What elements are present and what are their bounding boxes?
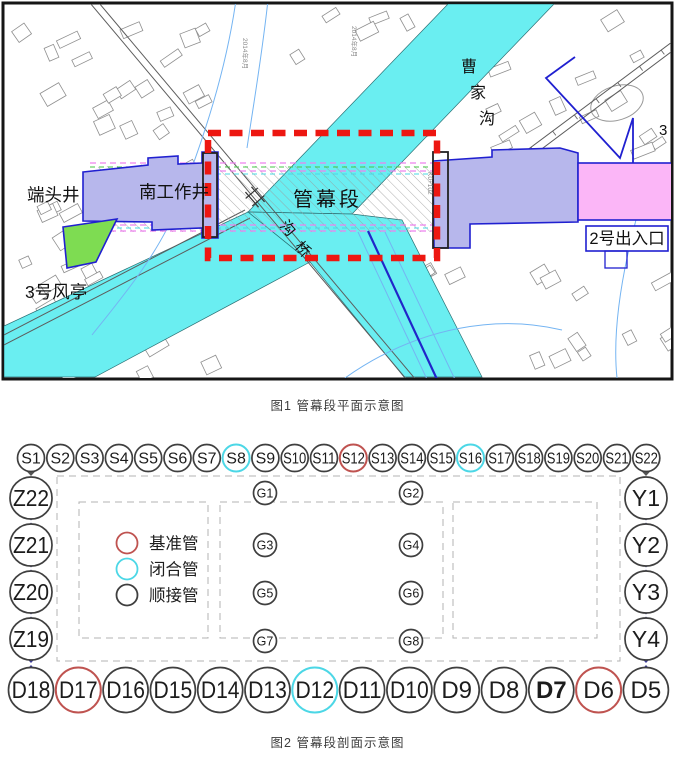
pipe-circle-S3: S3 — [76, 445, 103, 472]
svg-text:D8: D8 — [489, 677, 520, 704]
svg-text:S10: S10 — [283, 450, 306, 467]
pipe-circle-D12: D12 — [292, 668, 337, 713]
svg-text:S17: S17 — [488, 450, 511, 467]
pipe-circle-Y4: Y4 — [625, 618, 667, 660]
label-end-shaft: 端头井 — [27, 185, 80, 205]
pipe-circle-S14: S14 — [398, 445, 425, 472]
svg-text:家: 家 — [470, 84, 486, 102]
svg-text:S11: S11 — [312, 450, 335, 467]
svg-text:Y4: Y4 — [632, 626, 660, 652]
pipe-circle-S17: S17 — [486, 445, 513, 472]
svg-text:S1: S1 — [21, 450, 41, 467]
svg-text:S21: S21 — [605, 450, 628, 467]
pipe-circle-Z20: Z20 — [10, 571, 52, 613]
pipe-circle-D13: D13 — [245, 668, 290, 713]
svg-text:G3: G3 — [257, 538, 274, 552]
svg-text:G7: G7 — [257, 634, 274, 648]
svg-text:S22: S22 — [635, 450, 658, 467]
pipe-circle-S22: S22 — [633, 445, 660, 472]
svg-text:Z21: Z21 — [13, 532, 49, 558]
figure1-plan-map: 2014年8月 2014年8月 K0+102 端头井 南工作井 管幕段 3号风亭… — [0, 0, 675, 392]
pipe-circle-S11: S11 — [311, 445, 338, 472]
svg-text:S9: S9 — [256, 450, 276, 467]
middle-dashed-box — [220, 502, 443, 638]
svg-text:G1: G1 — [257, 486, 274, 500]
pipe-circle-D11: D11 — [340, 668, 385, 713]
svg-text:S16: S16 — [459, 450, 482, 467]
figure1-caption: 图1 管幕段平面示意图 — [0, 395, 675, 414]
label-pipe-curtain: 管幕段 — [293, 188, 362, 211]
svg-text:D6: D6 — [583, 677, 614, 704]
pipe-circle-G6: G6 — [400, 582, 423, 605]
svg-text:G6: G6 — [403, 586, 420, 600]
svg-text:D14: D14 — [201, 677, 240, 704]
pipe-circle-Y1: Y1 — [625, 477, 667, 519]
svg-text:S5: S5 — [138, 450, 158, 467]
pipe-circle-Y2: Y2 — [625, 524, 667, 566]
figure2-cross-section: S1S2S3S4S5S6S7S8S9S10S11S12S13S14S15S16S… — [0, 420, 675, 728]
pipe-circle-S10: S10 — [281, 445, 308, 472]
outer-dashed-box — [57, 476, 620, 661]
svg-text:Z22: Z22 — [13, 485, 49, 511]
legend-normal-label: 顺接管 — [149, 586, 199, 605]
pipe-circle-S2: S2 — [47, 445, 74, 472]
svg-text:S2: S2 — [51, 450, 71, 467]
svg-text:G4: G4 — [403, 538, 420, 552]
svg-text:S15: S15 — [430, 450, 453, 467]
pipe-circle-D18: D18 — [9, 668, 54, 713]
svg-text:沟: 沟 — [479, 110, 495, 128]
svg-text:2014年8月: 2014年8月 — [350, 26, 359, 57]
pipe-circle-S9: S9 — [252, 445, 279, 472]
pipe-circle-D9: D9 — [434, 668, 479, 713]
svg-text:G5: G5 — [257, 586, 274, 600]
pipe-circle-S5: S5 — [135, 445, 162, 472]
pipe-circle-S18: S18 — [516, 445, 543, 472]
svg-text:S8: S8 — [226, 450, 246, 467]
legend-normal-circle — [117, 585, 138, 606]
svg-text:S12: S12 — [342, 450, 365, 467]
svg-text:G8: G8 — [403, 634, 420, 648]
svg-text:曹: 曹 — [461, 58, 477, 76]
svg-text:D5: D5 — [631, 677, 662, 704]
svg-text:Y3: Y3 — [632, 579, 660, 605]
svg-text:Z20: Z20 — [13, 579, 49, 605]
svg-text:S7: S7 — [197, 450, 217, 467]
pipe-circle-S4: S4 — [105, 445, 132, 472]
svg-text:S4: S4 — [109, 450, 129, 467]
svg-text:2014年8月: 2014年8月 — [241, 38, 250, 69]
page: 2014年8月 2014年8月 K0+102 端头井 南工作井 管幕段 3号风亭… — [0, 0, 675, 761]
pipe-circle-S1: S1 — [18, 445, 45, 472]
pipe-circle-G8: G8 — [400, 630, 423, 653]
legend: 基准管闭合管顺接管 — [117, 533, 199, 606]
pipe-circle-D17: D17 — [56, 668, 101, 713]
pipe-circle-G5: G5 — [254, 582, 277, 605]
svg-text:D9: D9 — [441, 677, 472, 704]
right-dashed-box — [453, 502, 597, 638]
pipe-circle-S12: S12 — [340, 445, 367, 472]
svg-text:D16: D16 — [106, 677, 145, 704]
label-exit2: 2号出入口 — [589, 229, 664, 248]
pipe-circle-S21: S21 — [604, 445, 631, 472]
label-vent3: 3号风亭 — [25, 282, 87, 302]
svg-text:D12: D12 — [295, 677, 334, 704]
pipe-circle-D14: D14 — [198, 668, 243, 713]
svg-text:K0+102: K0+102 — [426, 172, 433, 195]
pipe-circle-S13: S13 — [369, 445, 396, 472]
pipe-circle-G1: G1 — [254, 482, 277, 505]
svg-text:D13: D13 — [248, 677, 287, 704]
pipe-circle-S16: S16 — [457, 445, 484, 472]
svg-text:S14: S14 — [400, 450, 423, 467]
pipe-circle-S7: S7 — [193, 445, 220, 472]
svg-text:S18: S18 — [517, 450, 540, 467]
pipe-circle-D5: D5 — [623, 668, 668, 713]
pipe-circle-D10: D10 — [387, 668, 432, 713]
svg-text:G2: G2 — [403, 486, 420, 500]
label-south-working-shaft: 南工作井 — [139, 182, 209, 202]
pipe-circle-Z19: Z19 — [10, 618, 52, 660]
svg-text:Z19: Z19 — [13, 626, 49, 652]
svg-text:D15: D15 — [154, 677, 193, 704]
exit2-structure — [578, 163, 674, 220]
legend-closed-circle — [117, 559, 138, 580]
pipe-circle-Z22: Z22 — [10, 477, 52, 519]
svg-text:Y1: Y1 — [632, 485, 660, 511]
svg-text:D10: D10 — [390, 677, 429, 704]
svg-text:D7: D7 — [536, 677, 567, 704]
pipe-circle-D6: D6 — [576, 668, 621, 713]
figure2-caption: 图2 管幕段剖面示意图 — [0, 732, 675, 751]
legend-datum-label: 基准管 — [149, 534, 199, 553]
pipe-circle-Z21: Z21 — [10, 524, 52, 566]
pipe-circle-Y3: Y3 — [625, 571, 667, 613]
pipe-circle-D7: D7 — [529, 668, 574, 713]
svg-text:D11: D11 — [343, 677, 382, 704]
pipe-circle-D16: D16 — [103, 668, 148, 713]
pipe-circle-S15: S15 — [428, 445, 455, 472]
pipe-circle-S20: S20 — [574, 445, 601, 472]
svg-text:S6: S6 — [168, 450, 188, 467]
pipe-circle-G3: G3 — [254, 534, 277, 557]
legend-datum-circle — [117, 533, 138, 554]
pipe-circle-S6: S6 — [164, 445, 191, 472]
svg-text:Y2: Y2 — [632, 532, 660, 558]
pipe-circle-S8: S8 — [223, 445, 250, 472]
pipe-circle-D15: D15 — [150, 668, 195, 713]
svg-text:S13: S13 — [371, 450, 394, 467]
svg-text:D17: D17 — [59, 677, 98, 704]
svg-text:S3: S3 — [80, 450, 100, 467]
pipe-circle-D8: D8 — [482, 668, 527, 713]
label-right-edge-number: 3 — [659, 122, 667, 139]
svg-text:D18: D18 — [12, 677, 51, 704]
pipe-circle-G7: G7 — [254, 630, 277, 653]
svg-text:S19: S19 — [547, 450, 570, 467]
legend-closed-label: 闭合管 — [149, 560, 199, 579]
pipe-circle-S19: S19 — [545, 445, 572, 472]
pipe-circle-G2: G2 — [400, 482, 423, 505]
svg-text:S20: S20 — [576, 450, 599, 467]
pipe-circle-G4: G4 — [400, 534, 423, 557]
